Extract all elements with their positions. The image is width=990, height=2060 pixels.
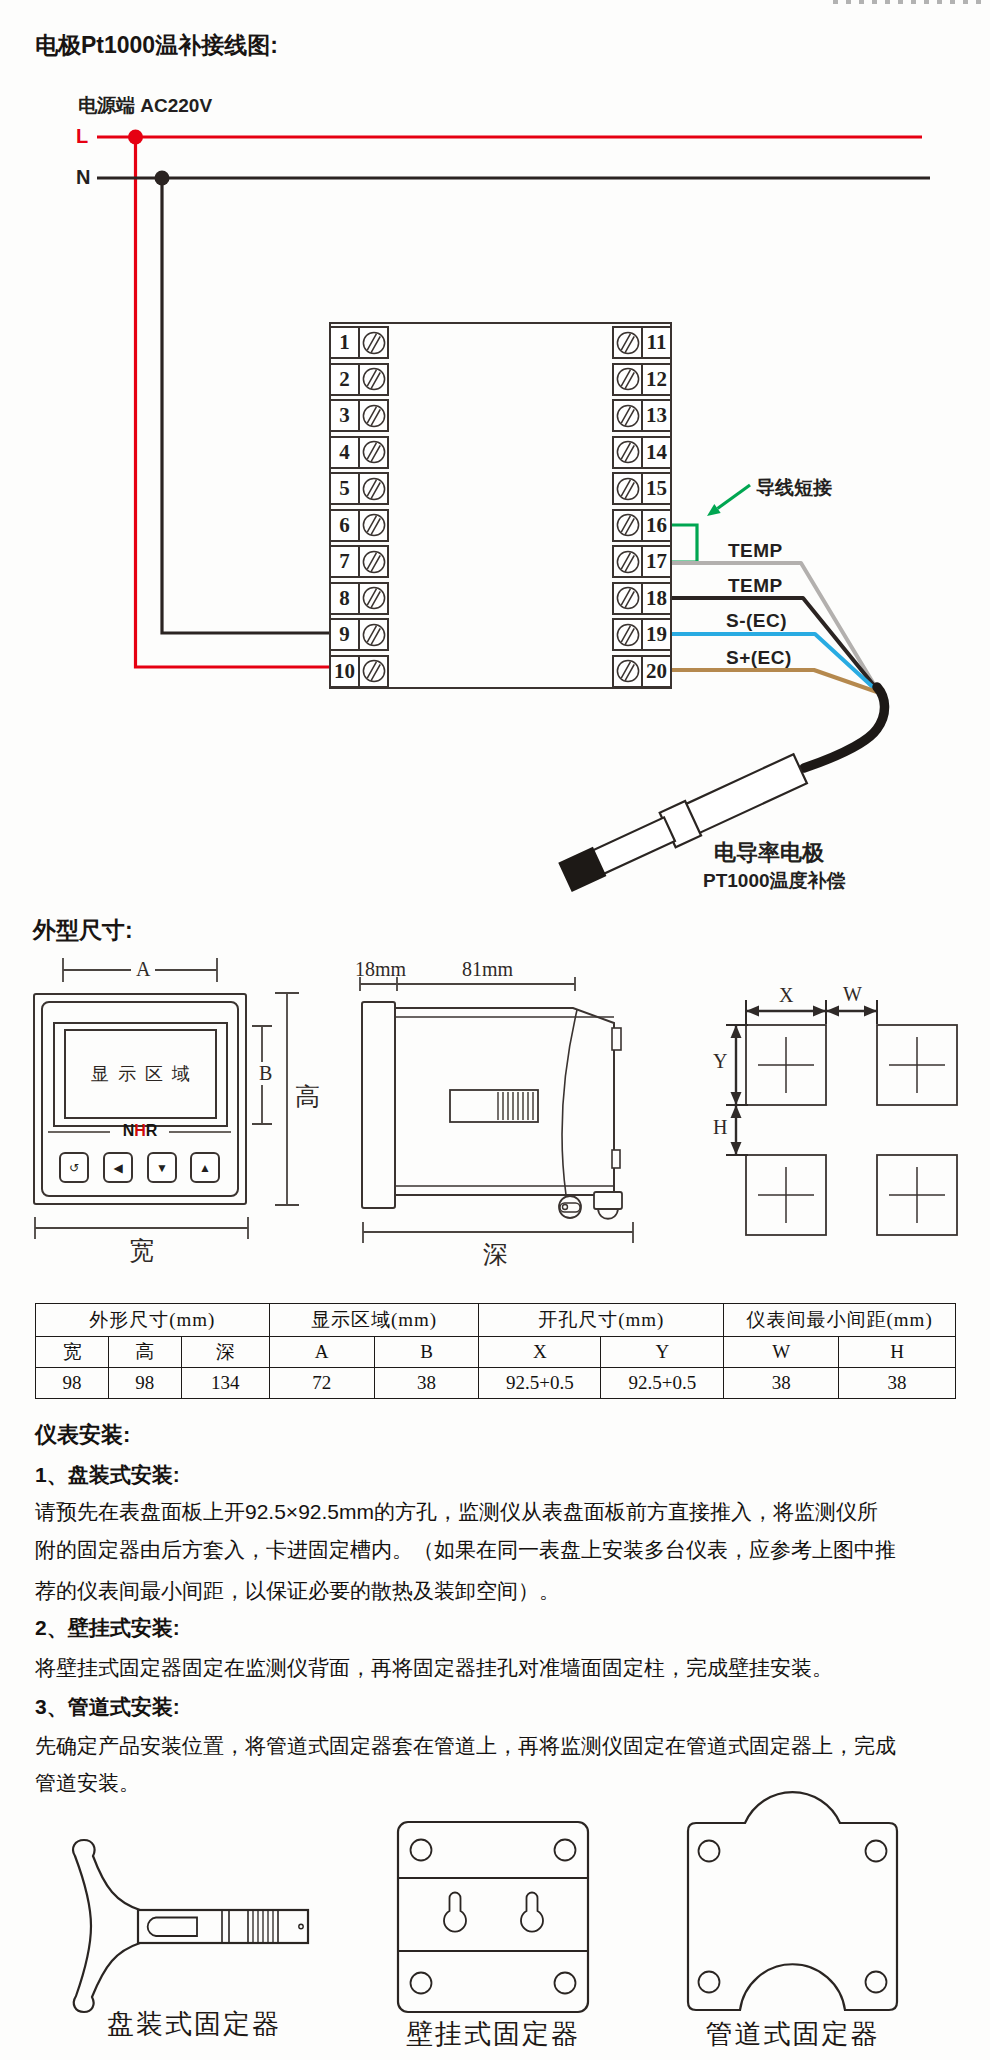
install-line: 将壁挂式固定器固定在监测仪背面，再将固定器挂孔对准墙面固定柱，完成壁挂安装。 [35,1654,833,1682]
down-arrow-button: ▼ [147,1152,177,1183]
terminal-12: 12 [612,363,672,396]
col-a: A [269,1337,374,1368]
val-b: 38 [374,1368,479,1399]
terminal-jumper [671,525,697,562]
install-heading: 仪表安装: [35,1420,130,1450]
val-a: 72 [269,1368,374,1399]
screw-icon [612,655,643,688]
dim-label-y: Y [713,1050,727,1073]
terminal-5: 5 [329,472,389,505]
dim-label-width: 宽 [129,1234,154,1267]
wall-mount-fixture [398,1822,588,2012]
terminal-number: 3 [329,399,360,432]
terminal-number: 16 [641,509,672,542]
neutral-line-label: N [76,166,90,189]
group-outline-size: 外形尺寸(mm) [36,1304,270,1337]
terminal-17: 17 [612,545,672,578]
brand-logo: NHR [112,1122,168,1140]
terminal-9: 9 [329,618,389,651]
terminal-16: 16 [612,509,672,542]
terminal-number: 1 [329,326,360,359]
left-arrow-button: ◀ [103,1152,133,1183]
probe-cable [804,687,885,768]
terminal-number: 20 [641,655,672,688]
wire-label-temp-1: TEMP [728,540,783,562]
terminal-13: 13 [612,399,672,432]
live-line-label: L [76,125,88,148]
terminal-number: 6 [329,509,360,542]
terminal-20: 20 [612,655,672,688]
neutral-junction-dot [155,171,170,186]
dim-label-b: B [254,1062,277,1085]
install-step-2-title: 2、壁挂式安装: [35,1614,180,1642]
terminal-number: 7 [329,545,360,578]
terminal-number: 13 [641,399,672,432]
keyhole-slot [521,1893,543,1932]
live-junction-dot [128,130,143,145]
terminal-11: 11 [612,326,672,359]
install-line: 请预先在表盘面板上开92.5×92.5mm的方孔，监测仪从表盘面板前方直接推入，… [35,1498,878,1526]
display-area-label: 显示区域 [91,1062,199,1086]
col-width: 宽 [36,1337,109,1368]
dim-label-h: H [713,1116,727,1139]
terminal-number: 19 [641,618,672,651]
val-width: 98 [36,1368,109,1399]
return-button: ↺ [59,1152,89,1183]
terminal-number: 12 [641,363,672,396]
install-line: 管道安装。 [35,1769,140,1797]
screw-icon [612,509,643,542]
terminal-19: 19 [612,618,672,651]
display-area: 显示区域 [64,1029,217,1119]
panel-mount-fixture [73,1840,308,2012]
wall-fixture-label: 壁挂式固定器 [397,2016,589,2052]
terminal-8: 8 [329,582,389,615]
screw-icon [612,326,643,359]
col-y: Y [601,1337,724,1368]
val-height: 98 [108,1368,181,1399]
terminal-number: 2 [329,363,360,396]
pipe-mount-fixture [688,1792,897,2010]
terminal-7: 7 [329,545,389,578]
up-arrow-button: ▲ [190,1152,220,1183]
val-depth: 134 [181,1368,269,1399]
wire-label-ec-minus: S-(EC) [726,610,787,632]
wire-label-temp-2: TEMP [728,575,783,597]
terminal-number: 15 [641,472,672,505]
screw-icon [358,509,389,542]
screw-icon [358,655,389,688]
panel-fixture-label: 盘装式固定器 [96,2006,292,2042]
screw-icon [358,363,389,396]
screw-icon [358,472,389,505]
col-h: H [839,1337,956,1368]
install-step-3-title: 3、管道式安装: [35,1693,180,1721]
screw-icon [358,399,389,432]
screw-icon [358,582,389,615]
terminal-number: 4 [329,436,360,469]
power-terminal-label: 电源端 AC220V [78,93,212,119]
dim-label-18mm: 18mm [355,958,406,981]
terminal-14: 14 [612,436,672,469]
val-h: 38 [839,1368,956,1399]
terminal-15: 15 [612,472,672,505]
terminal-number: 9 [329,618,360,651]
terminal-4: 4 [329,436,389,469]
panel-cutout-diagram [726,1000,957,1235]
probe-title: 电导率电极 [714,838,824,868]
green-arrow-shaft [718,485,751,509]
terminal-1: 1 [329,326,389,359]
screw-icon [358,436,389,469]
group-min-spacing: 仪表间最小间距(mm) [724,1304,956,1337]
col-w: W [724,1337,839,1368]
install-line: 附的固定器由后方套入，卡进固定槽内。（如果在同一表盘上安装多台仪表，应参考上图中… [35,1536,896,1564]
col-depth: 深 [181,1337,269,1368]
wire-label-ec-plus: S+(EC) [726,647,792,669]
outline-heading: 外型尺寸: [33,915,133,946]
terminal-number: 17 [641,545,672,578]
dim-label-height: 高 [295,1080,320,1113]
terminal-3: 3 [329,399,389,432]
jumper-label: 导线短接 [756,475,832,501]
val-x: 92.5+0.5 [479,1368,601,1399]
col-b: B [374,1337,479,1368]
terminal-column-left: 12345678910 [329,326,389,688]
terminal-column-right: 11121314151617181920 [612,326,672,688]
terminal-10: 10 [329,655,389,688]
keyhole-slot [444,1893,466,1932]
screw-icon [612,436,643,469]
screw-icon [612,399,643,432]
col-x: X [479,1337,601,1368]
terminal-number: 10 [329,655,360,688]
group-cutout-size: 开孔尺寸(mm) [479,1304,724,1337]
screw-icon [612,618,643,651]
terminal-number: 11 [641,326,672,359]
install-line: 先确定产品安装位置，将管道式固定器套在管道上，再将监测仪固定在管道式固定器上，完… [35,1732,896,1760]
screw-icon [358,545,389,578]
dim-label-a: A [131,958,155,981]
screw-icon [612,545,643,578]
green-arrow-head [707,504,721,516]
group-display-area: 显示区域(mm) [269,1304,479,1337]
side-view [360,977,633,1243]
terminal-6: 6 [329,509,389,542]
col-height: 高 [108,1337,181,1368]
screw-icon [358,326,389,359]
clipped-text-fragment [833,0,985,4]
terminal-2: 2 [329,363,389,396]
dim-label-x: X [779,984,793,1007]
logo-line-left [48,1131,110,1133]
dim-label-depth: 深 [483,1238,508,1271]
screw-icon [612,472,643,505]
wire-ec-plus [671,670,877,692]
install-step-1-title: 1、盘装式安装: [35,1461,180,1489]
install-line: 荐的仪表间最小间距，以保证必要的散热及装卸空间）。 [35,1577,560,1605]
screw-icon [612,363,643,396]
terminal-number: 14 [641,436,672,469]
logo-line-right [169,1131,231,1133]
terminal-18: 18 [612,582,672,615]
dim-label-w: W [843,983,862,1006]
screw-icon [358,618,389,651]
terminal-number: 5 [329,472,360,505]
val-y: 92.5+0.5 [601,1368,724,1399]
terminal-number: 18 [641,582,672,615]
dim-label-81mm: 81mm [462,958,513,981]
terminal-number: 8 [329,582,360,615]
manual-page: 电极Pt1000温补接线图: 电源端 AC220V L N 导线短接 TEMP … [0,0,990,2060]
probe-subtitle: PT1000温度补偿 [703,868,846,894]
pipe-fixture-label: 管道式固定器 [690,2016,895,2052]
spec-table: 外形尺寸(mm) 显示区域(mm) 开孔尺寸(mm) 仪表间最小间距(mm) 宽… [35,1303,956,1399]
wiring-title: 电极Pt1000温补接线图: [35,30,278,61]
screw-icon [612,582,643,615]
val-w: 38 [724,1368,839,1399]
